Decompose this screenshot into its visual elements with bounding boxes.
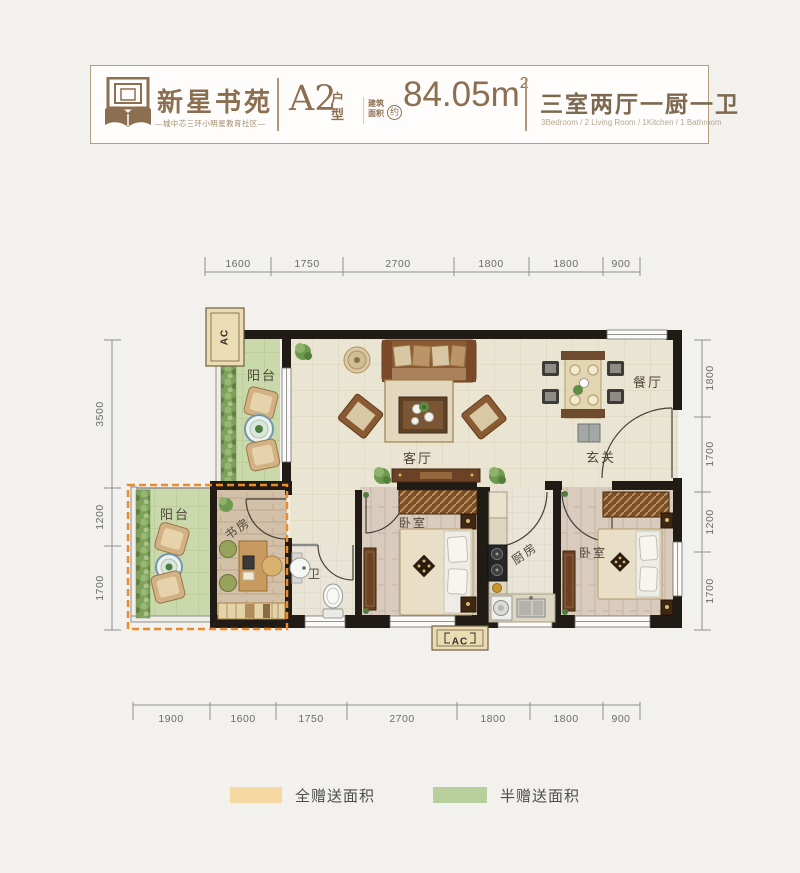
svg-text:1900: 1900: [158, 713, 183, 725]
header: 新星书苑 —城中芯三环小明星教育社区— A2 户型 建筑面积 约 84.05m2…: [90, 65, 709, 144]
label-entry: 玄关: [586, 450, 616, 465]
svg-text:1800: 1800: [704, 365, 716, 390]
area-approx-badge: 约: [387, 105, 402, 120]
label-bath: 卫: [308, 567, 322, 581]
area-number: 84.05: [403, 75, 491, 114]
legend-swatch-full: [230, 787, 282, 803]
svg-text:3500: 3500: [94, 401, 106, 426]
dimension-right: 1800 1700 1200 1700: [694, 340, 716, 630]
area-unit: m: [491, 75, 520, 114]
label-bedroom-right: 卧室: [579, 545, 607, 560]
svg-text:1750: 1750: [298, 713, 323, 725]
svg-text:1700: 1700: [94, 575, 106, 600]
svg-text:900: 900: [611, 713, 630, 725]
svg-text:1200: 1200: [704, 509, 716, 534]
area-label: 建筑面积: [368, 99, 386, 120]
floor-corridor: [290, 487, 362, 547]
side-table: [344, 347, 370, 373]
logo-book-icon: [104, 77, 152, 133]
svg-text:1800: 1800: [480, 713, 505, 725]
label-dining: 餐厅: [633, 375, 663, 390]
unit-code: A2: [289, 79, 337, 119]
legend-swatch-half: [433, 787, 487, 803]
entry-cabinet: [578, 424, 600, 442]
svg-text:1700: 1700: [704, 578, 716, 603]
svg-text:2700: 2700: [385, 258, 410, 270]
ac-platform-bottom: AC: [432, 626, 488, 650]
project-name: 新星书苑: [157, 82, 273, 119]
ac-label: AC: [220, 329, 231, 345]
svg-text:1800: 1800: [553, 713, 578, 725]
header-divider: [277, 78, 279, 131]
wardrobe: [399, 490, 477, 514]
unit-type-label: 户型: [331, 91, 346, 122]
wardrobe: [603, 492, 669, 517]
coffee-table: [385, 380, 453, 442]
ac-label: AC: [452, 637, 468, 648]
svg-text:1600: 1600: [225, 258, 250, 270]
area-value: 84.05m2: [403, 75, 529, 115]
svg-text:1800: 1800: [478, 258, 503, 270]
label-balcony-bottom: 阳台: [160, 507, 190, 522]
tv-cabinet: [392, 469, 480, 482]
legend-label-full: 全赠送面积: [295, 785, 375, 806]
page: { "header": { "logo_name": "新星书苑", "logo…: [0, 0, 800, 873]
svg-text:1600: 1600: [230, 713, 255, 725]
svg-text:1200: 1200: [94, 504, 106, 529]
ac-platform-top: AC: [206, 308, 244, 366]
svg-text:1800: 1800: [553, 258, 578, 270]
svg-text:2700: 2700: [389, 713, 414, 725]
legend-label-half: 半赠送面积: [500, 785, 580, 806]
svg-text:900: 900: [611, 258, 630, 270]
header-mini-divider: [363, 97, 364, 124]
dimension-top: 1600 1750 2700 1800 1800 900: [205, 257, 640, 276]
legend-item-full-gift: 全赠送面积: [230, 785, 375, 805]
header-divider: [525, 78, 527, 131]
dimension-left: 3500 1200 1700: [94, 340, 121, 630]
layout-title: 三室两厅一厨一卫: [540, 85, 740, 119]
layout-subtitle: 3Bedroom / 2 Living Room / 1Kitchen / 1 …: [541, 118, 722, 127]
dimension-bottom: 1900 1600 1750 2700 1800 1800 900: [133, 702, 640, 725]
legend-item-half-gift: 半赠送面积: [433, 785, 580, 805]
project-tagline: —城中芯三环小明星教育社区—: [155, 118, 266, 129]
svg-text:1700: 1700: [704, 441, 716, 466]
label-living: 客厅: [403, 451, 433, 466]
label-bedroom-mid: 卧室: [399, 515, 427, 530]
toilet-tank: [323, 609, 343, 618]
label-balcony-top: 阳台: [247, 368, 277, 383]
svg-text:1750: 1750: [294, 258, 319, 270]
